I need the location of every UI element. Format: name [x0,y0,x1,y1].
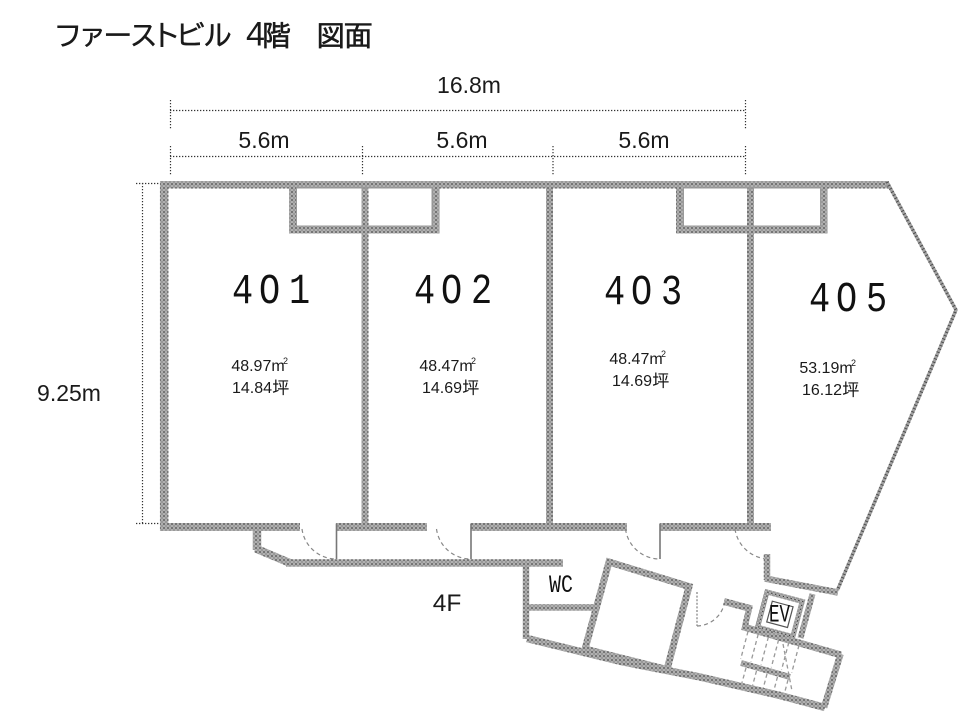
svg-text:2: 2 [471,356,476,366]
svg-text:O: O [631,268,652,317]
svg-text:3: 3 [661,268,682,317]
svg-text:2: 2 [851,358,856,368]
svg-text:2: 2 [661,349,666,359]
svg-text:16.12: 16.12 [802,382,842,399]
svg-text:O: O [259,267,280,316]
svg-text:9.25m: 9.25m [37,380,101,406]
svg-text:14.69: 14.69 [612,373,652,390]
svg-text:5.6m: 5.6m [618,127,669,153]
svg-text:O: O [836,275,857,324]
svg-text:WC: WC [549,571,573,600]
svg-text:48.97m: 48.97m [231,358,284,375]
svg-text:4: 4 [604,268,625,317]
svg-text:4: 4 [414,267,435,316]
svg-text:5.6m: 5.6m [238,127,289,153]
svg-text:16.8m: 16.8m [437,72,501,98]
svg-text:2: 2 [471,267,492,316]
svg-text:2: 2 [283,356,288,366]
svg-text:4F: 4F [433,590,462,617]
svg-text:5.6m: 5.6m [436,127,487,153]
svg-text:48.47m: 48.47m [419,358,472,375]
svg-text:4: 4 [232,267,253,316]
svg-text:48.47m: 48.47m [609,351,662,368]
svg-text:53.19m: 53.19m [799,360,852,377]
svg-text:14.84: 14.84 [232,380,272,397]
svg-text:EV: EV [769,601,790,630]
svg-text:5: 5 [866,275,887,324]
svg-text:O: O [441,267,462,316]
svg-text:4: 4 [246,16,265,54]
svg-text:14.69: 14.69 [422,380,462,397]
svg-text:4: 4 [809,275,830,324]
svg-text:1: 1 [289,267,310,316]
